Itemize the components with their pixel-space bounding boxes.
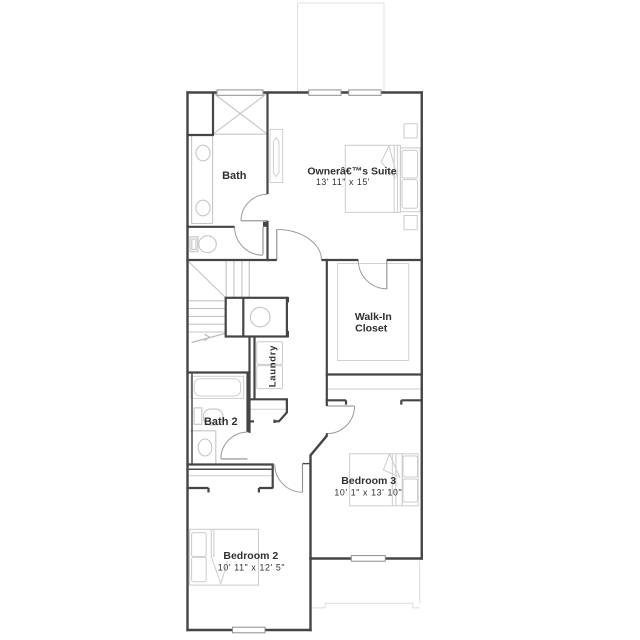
svg-text:Laundry: Laundry xyxy=(267,345,278,387)
svg-text:Ownerâ€™s Suite: Ownerâ€™s Suite xyxy=(307,165,396,177)
svg-text:Walk-In: Walk-In xyxy=(355,311,392,323)
svg-text:Bath 2: Bath 2 xyxy=(204,416,238,428)
svg-text:Bedroom 3: Bedroom 3 xyxy=(341,475,396,487)
svg-text:Bedroom 2: Bedroom 2 xyxy=(223,550,278,562)
svg-text:Closet: Closet xyxy=(355,323,388,335)
svg-text:13' 11" x 15': 13' 11" x 15' xyxy=(316,177,370,187)
svg-text:10' 11" x 12' 5": 10' 11" x 12' 5" xyxy=(218,562,285,572)
svg-text:10' 1" x 13' 10": 10' 1" x 13' 10" xyxy=(334,487,402,497)
svg-text:Bath: Bath xyxy=(222,170,247,182)
